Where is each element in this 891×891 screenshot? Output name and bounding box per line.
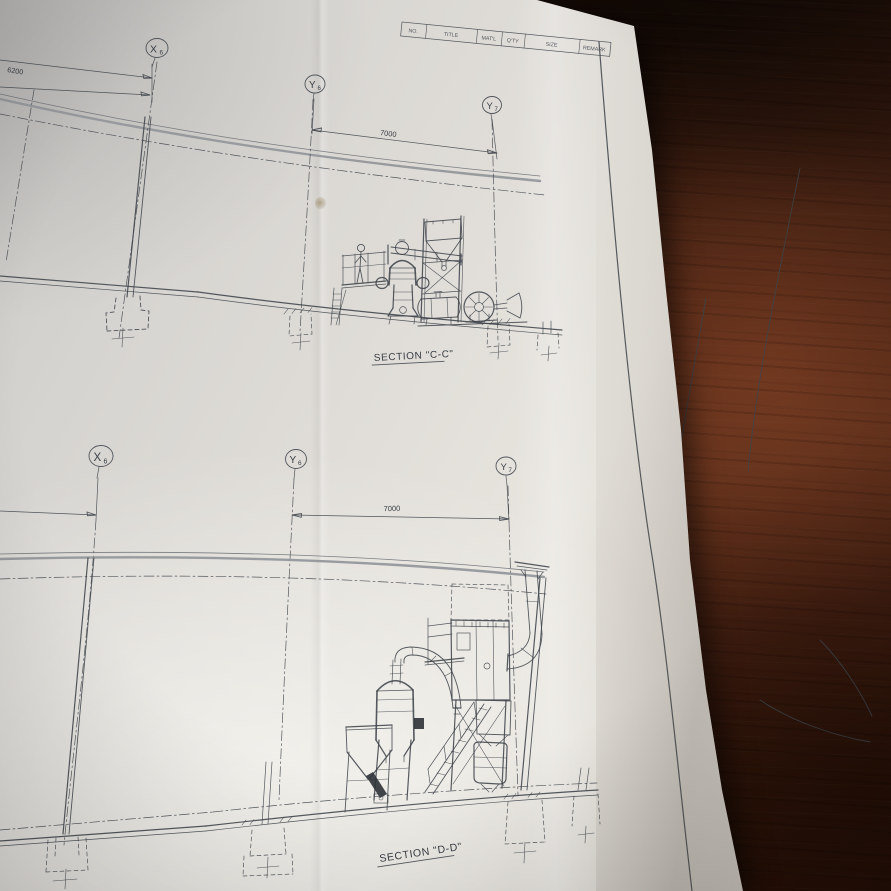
section-c-c-label: SECTION "C-C" — [372, 349, 454, 365]
foundation-right-upper — [537, 321, 559, 361]
svg-text:Y6: Y6 — [309, 80, 322, 92]
column-y7-lower — [521, 578, 546, 790]
paper-wrap: NO. TITLE MAT'L Q'TY SIZE REMARK — [0, 0, 891, 891]
dim-7000-lower: 7000 — [292, 485, 509, 522]
grid-label-sub: 6 — [160, 50, 164, 57]
title-block-strip: NO. TITLE MAT'L Q'TY SIZE REMARK — [401, 22, 611, 56]
grid-label-main: Y — [487, 101, 494, 112]
dim-7000-upper: 7000 — [312, 99, 497, 159]
ground-line-cc — [198, 292, 562, 335]
svg-text:SECTION "D-D": SECTION "D-D" — [379, 841, 463, 865]
platform-lower — [425, 618, 464, 665]
grid-bubble-x6-lower: X6 — [89, 446, 113, 479]
upper-roof-line — [0, 94, 545, 195]
access-ladder — [331, 288, 346, 325]
cyclone-mill — [374, 659, 424, 800]
dust-collector — [451, 584, 511, 792]
foundation-right-lower — [572, 768, 600, 843]
dim-7000-upper-text: 7000 — [380, 128, 397, 139]
centerline-x6-lower — [64, 520, 96, 845]
dim-6200: 6200 — [0, 60, 152, 102]
foundation-x6-upper — [106, 296, 149, 347]
title-field-remark: REMARK — [583, 45, 607, 53]
grid-bubble-y6-lower: Y6 — [286, 450, 307, 480]
foundation-mid-lower — [242, 762, 293, 878]
foundation-y6-upper — [284, 308, 312, 351]
svg-text:X6: X6 — [150, 44, 164, 57]
worker-figure — [355, 244, 366, 283]
dim-6200-text: 6200 — [7, 65, 24, 76]
svg-text:Y7: Y7 — [501, 462, 513, 474]
engineering-drawing: NO. TITLE MAT'L Q'TY SIZE REMARK — [0, 0, 891, 891]
lower-roof-line — [0, 552, 546, 594]
foundation-x6-lower — [46, 837, 88, 889]
grid-label-main: X — [94, 452, 102, 464]
upper-left-bay — [0, 62, 198, 338]
centerline-y6-upper — [300, 100, 313, 332]
dim-left-lower — [0, 478, 98, 520]
title-field-qty: Q'TY — [506, 38, 519, 45]
grid-bubble-y7-lower: Y7 — [496, 457, 516, 485]
ground-line-dd — [0, 783, 598, 846]
grid-bubble-y6-upper: Y6 — [305, 75, 325, 101]
grid-label-main: Y — [501, 462, 508, 473]
storage-bin — [345, 725, 392, 812]
connecting-duct — [388, 245, 462, 265]
grid-label-main: Y — [309, 80, 316, 91]
title-field-no: NO. — [408, 28, 418, 35]
exhaust-fan — [418, 292, 527, 326]
title-field-matl: MAT'L — [481, 35, 496, 42]
sheet-border-line — [599, 42, 692, 891]
section-c-c: 6200 X6 Y6 — [0, 39, 562, 366]
svg-text:Y6: Y6 — [290, 455, 303, 467]
title-field-size: SIZE — [545, 42, 558, 49]
paper-sheet: NO. TITLE MAT'L Q'TY SIZE REMARK — [0, 0, 891, 891]
grid-label-sub: 6 — [298, 460, 302, 467]
grid-bubble-y7-upper: Y7 — [483, 97, 502, 122]
dim-7000-lower-text: 7000 — [384, 504, 401, 513]
section-d-d-label: SECTION "D-D" — [376, 841, 464, 867]
foundation-y7-lower — [504, 792, 545, 863]
svg-text:Y7: Y7 — [487, 101, 499, 113]
platform-railing — [342, 251, 386, 288]
grid-label-main: X — [150, 44, 157, 56]
photo-scene: NO. TITLE MAT'L Q'TY SIZE REMARK — [0, 0, 891, 891]
grid-label-sub: 6 — [104, 459, 108, 466]
hopper-frame — [421, 216, 464, 322]
grid-label-main: Y — [290, 455, 297, 466]
title-field-title: TITLE — [443, 32, 458, 39]
section-d-d: X6 Y6 Y7 — [0, 446, 600, 890]
svg-text:X6: X6 — [94, 452, 108, 466]
centerline-y6-lower — [279, 479, 294, 800]
